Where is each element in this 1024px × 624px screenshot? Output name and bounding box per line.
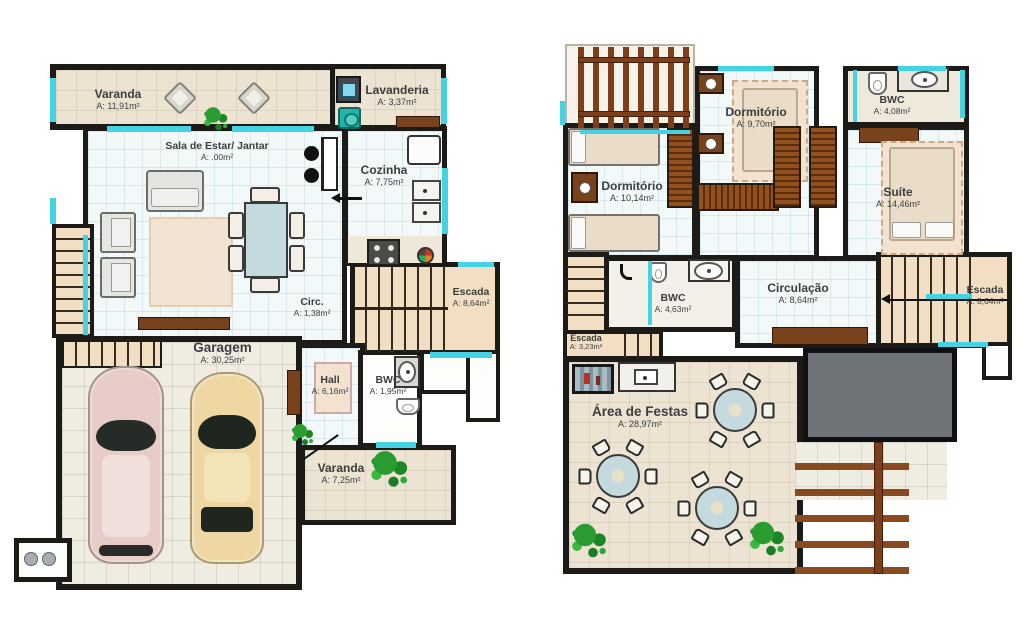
room-area: A: 1,38m²: [286, 309, 338, 319]
armchair: [100, 212, 136, 253]
room-name: Escada: [445, 287, 497, 299]
room-area: A: 30,25m²: [175, 355, 270, 365]
room-name: Escada: [958, 285, 1012, 297]
table-chair: [696, 402, 709, 418]
room-area: A: .00m²: [152, 153, 282, 163]
landing-box-f2: [982, 342, 1012, 380]
living-rug: [149, 217, 233, 307]
speaker-dot: [304, 146, 319, 161]
plant: [739, 509, 787, 557]
room-area: A: 11,91m²: [72, 101, 164, 111]
stairs-garage-treads: [64, 342, 160, 366]
window: [960, 70, 965, 118]
car-beige: [190, 372, 264, 564]
room-name: BWC: [646, 293, 700, 305]
hall-cabinet: [287, 370, 301, 415]
car-roof: [102, 455, 150, 536]
bwc-mid-sink: [694, 262, 723, 280]
laundry-shelf: [396, 116, 440, 128]
window: [83, 235, 88, 335]
room-name: Circulação: [756, 282, 840, 295]
kitchen-sink: [412, 202, 441, 223]
room-area: A: 8,64m²: [756, 295, 840, 305]
bwc-top-sink: [911, 71, 938, 88]
table-chair: [678, 500, 691, 516]
sofa: [146, 170, 204, 212]
label-suite: Suíte A: 14,46m²: [866, 186, 930, 210]
room-name: Hall: [308, 375, 352, 387]
stair-treads-left-run: [613, 334, 659, 358]
dining-chair: [228, 245, 244, 272]
pillow: [571, 217, 586, 249]
label-hall: Hall A: 6,16m²: [308, 375, 352, 396]
car-pink: [88, 366, 164, 564]
bwc-mid-toilet: [650, 262, 667, 283]
wall-panel: [321, 137, 338, 191]
table-chair: [645, 468, 658, 484]
label-escada-f1: Escada A: 8,64m²: [445, 287, 497, 308]
door-arrow-head: [326, 193, 340, 203]
stove: [367, 239, 400, 266]
deck-beams: [795, 444, 909, 574]
round-table: [590, 448, 646, 504]
room-name: Suíte: [866, 186, 930, 199]
room-name: Lavanderia: [352, 84, 442, 97]
churrasqueira-grill: [572, 364, 614, 394]
armchair: [100, 257, 136, 298]
room-area: A: 1,95m²: [362, 387, 414, 397]
car-rear-window: [201, 507, 253, 531]
window: [458, 262, 494, 267]
round-table: [707, 382, 763, 438]
room-area: A: 4,08m²: [862, 107, 922, 117]
room-name: Sala de Estar/ Jantar: [152, 141, 282, 153]
label-bwc-top: BWC A: 4,08m²: [862, 95, 922, 116]
window: [580, 130, 690, 134]
car-rear-window: [99, 545, 152, 557]
pillow: [892, 222, 921, 238]
table-chair: [762, 402, 775, 418]
fridge: [407, 135, 441, 165]
deck-beam-vertical: [874, 442, 883, 574]
label-area-festas: Área de Festas A: 28,97m²: [586, 404, 694, 429]
label-escada-right: Escada A: 8,64m²: [958, 285, 1012, 306]
label-bwc-mid: BWC A: 4,63m²: [646, 293, 700, 314]
label-bwc-f1: BWC A: 1,95m²: [362, 375, 414, 396]
window: [938, 342, 988, 347]
room-name: Circ.: [286, 297, 338, 309]
bwc1-toilet: [396, 398, 420, 415]
room-name: BWC: [362, 375, 414, 387]
room-area: A: 4,63m²: [646, 305, 700, 315]
window: [898, 66, 946, 71]
room-landing-f1b: [466, 350, 500, 422]
table-top: [596, 454, 640, 498]
festas-sink: [634, 369, 658, 385]
round-table: [689, 480, 745, 536]
window: [232, 126, 314, 132]
room-name: Garagem: [175, 340, 270, 355]
plant: [197, 99, 230, 132]
room-area: A: 28,97m²: [586, 419, 694, 429]
label-dormitorio-left: Dormitório A: 10,14m²: [592, 180, 672, 204]
label-varanda-top: Varanda A: 11,91m²: [72, 88, 164, 112]
room-name: Área de Festas: [586, 404, 694, 419]
table-top: [713, 388, 757, 432]
room-name: Varanda: [306, 462, 376, 475]
pergola-rail: [578, 111, 690, 117]
label-sala: Sala de Estar/ Jantar A: .00m²: [152, 141, 282, 162]
room-area: A: 14,46m²: [866, 199, 930, 209]
room-area: A: 7,75m²: [350, 177, 418, 187]
laundry-tub: [338, 107, 361, 129]
window: [107, 126, 191, 132]
window: [376, 442, 416, 448]
room-area: A: 10,14m²: [592, 193, 672, 203]
dining-chair: [289, 245, 305, 272]
label-circulacao: Circulação A: 8,64m²: [756, 282, 840, 306]
room-area: A: 9,70m²: [712, 119, 800, 129]
label-lavanderia: Lavanderia A: 3,37m²: [352, 84, 442, 108]
room-area: A: 7,25m²: [306, 475, 376, 485]
car-roof: [204, 453, 250, 502]
tv-cabinet: [138, 317, 230, 330]
window: [50, 78, 56, 122]
label-cozinha: Cozinha A: 7,75m²: [350, 164, 418, 188]
window: [430, 352, 492, 358]
pillow: [925, 222, 954, 238]
gas-cylinder: [42, 552, 56, 566]
plant: [285, 416, 315, 446]
label-escada-left: Escada A: 3,23m²: [561, 333, 611, 351]
nightstand: [697, 73, 724, 94]
dining-chair: [289, 212, 305, 239]
dining-chair: [250, 277, 280, 293]
door-arrow-line: [338, 197, 362, 200]
label-varanda-bottom: Varanda A: 7,25m²: [306, 462, 376, 486]
bwc-top-toilet: [868, 72, 887, 95]
dining-chair: [228, 212, 244, 239]
table-chair: [579, 468, 592, 484]
void-area: [803, 348, 957, 442]
stair-direction-arrow: [876, 294, 890, 304]
window: [560, 101, 565, 125]
fruit-bowl: [417, 247, 434, 264]
room-name: Cozinha: [350, 164, 418, 177]
pillow: [571, 131, 586, 163]
label-garagem: Garagem A: 30,25m²: [175, 340, 270, 365]
plant: [561, 511, 609, 559]
room-area: A: 6,16m²: [308, 387, 352, 397]
stair-treads-left: [567, 256, 605, 326]
room-name: BWC: [862, 95, 922, 107]
speaker-dot: [304, 168, 319, 183]
room-name: Dormitório: [712, 106, 800, 119]
room-name: Varanda: [72, 88, 164, 101]
label-circ: Circ. A: 1,38m²: [286, 297, 338, 318]
window: [50, 198, 56, 224]
room-name: Dormitório: [592, 180, 672, 193]
room-area: A: 8,64m²: [958, 297, 1012, 307]
floor-plan-canvas: Varanda A: 11,91m² Lavanderia A: 3,37m² …: [0, 0, 1024, 624]
room-area: A: 3,23m²: [561, 343, 611, 351]
pergola-rail: [578, 57, 690, 63]
label-dormitorio-top: Dormitório A: 9,70m²: [712, 106, 800, 130]
gas-cylinder: [24, 552, 38, 566]
room-area: A: 3,37m²: [352, 97, 442, 107]
wardrobe: [697, 183, 779, 211]
room-area: A: 8,64m²: [445, 299, 497, 309]
car-windshield: [198, 415, 255, 449]
stair-divider-f1: [354, 307, 448, 310]
window: [442, 168, 448, 234]
car-windshield: [96, 420, 155, 451]
window: [853, 70, 857, 122]
wardrobe: [809, 126, 837, 208]
wardrobe: [773, 126, 801, 208]
dining-chair: [250, 187, 280, 203]
table-top: [695, 486, 739, 530]
dining-table: [244, 202, 288, 278]
circulacao-console: [772, 327, 868, 345]
nightstand: [697, 133, 724, 154]
window: [718, 66, 774, 71]
